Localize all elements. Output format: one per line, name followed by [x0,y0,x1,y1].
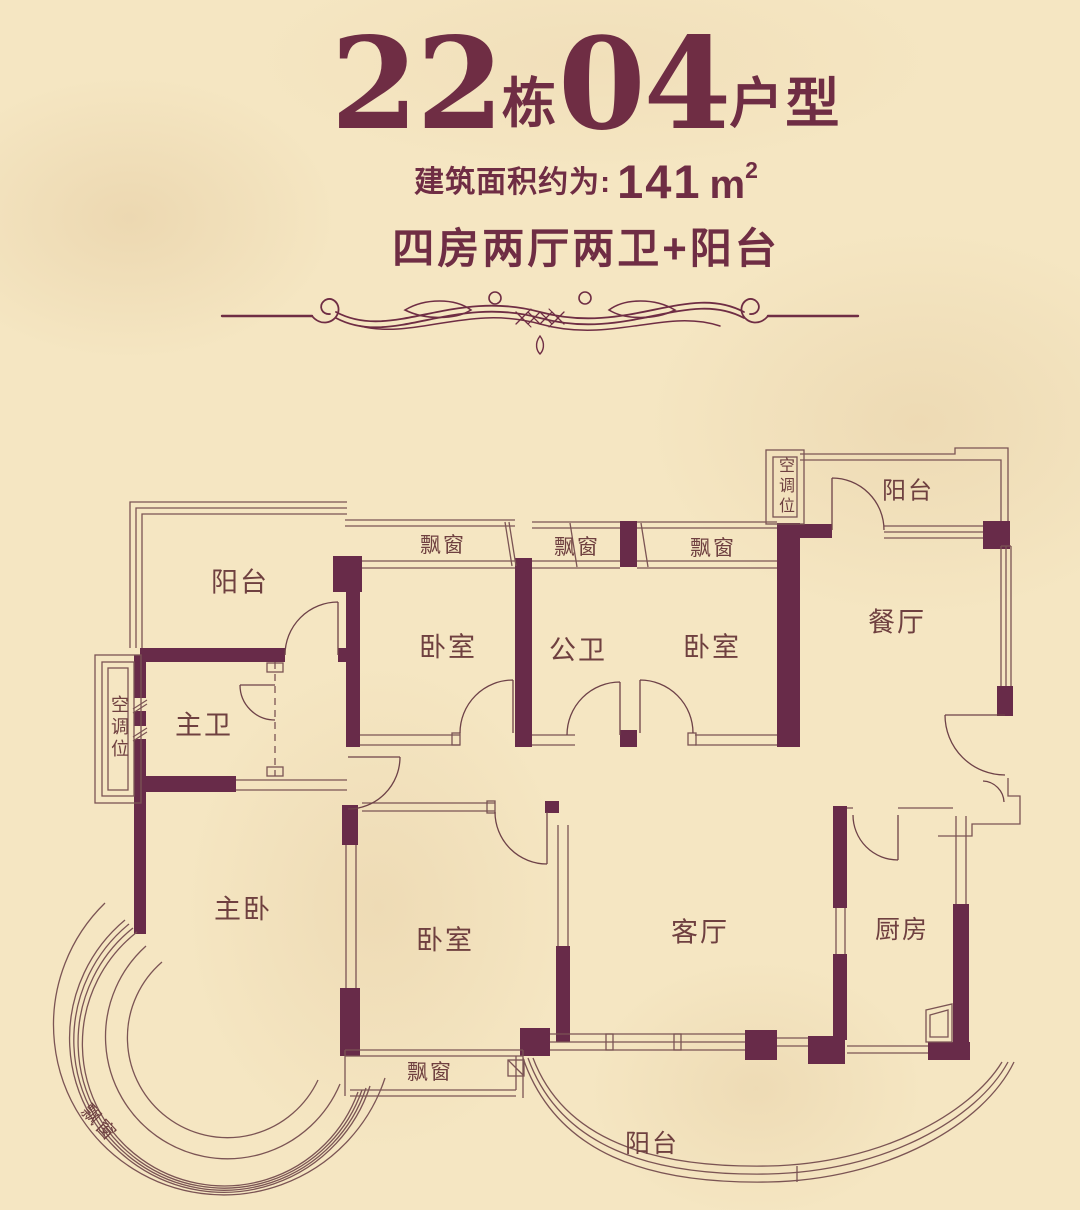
room-label-bedroom-3: 卧室 [416,919,474,958]
room-label-bay-window-bottom: 飘窗 [407,1056,453,1086]
room-label-balcony-top-right: 阳台 [882,471,934,506]
room-label-balcony-bottom: 阳台 [625,1124,679,1160]
room-label-living-room: 客厅 [671,911,729,950]
floor-plan-drawing [0,430,1080,1210]
floor-plan: 阳台 空调位 主卫 主卧 飘窗 卧室 飘窗 公卫 飘窗 卧室 空调位 阳台 餐厅… [0,430,1080,1210]
page-title: 22栋04户型 [92,18,1080,150]
layout-description: 四房两厅两卫+阳台 [92,215,1080,276]
room-label-master-bedroom: 主卧 [214,888,272,927]
room-label-bedroom-1: 卧室 [419,626,477,665]
room-label-ac-unit-left: 空调位 [105,695,131,761]
plan-header: 22栋04户型 建筑面积约为:141m2 四房两厅两卫+阳台 [0,18,1080,276]
unit-number: 04 [558,10,729,158]
room-label-bay-window-top-3: 飘窗 [690,532,736,562]
unit-label: 户型 [729,71,841,135]
room-label-bedroom-2: 卧室 [683,626,741,665]
area-prefix: 建筑面积约为: [414,166,611,199]
room-label-dining-room: 餐厅 [868,601,926,640]
room-label-bay-window-top-2: 飘窗 [554,531,600,561]
area-unit: m [710,163,746,207]
building-label: 栋 [502,71,558,135]
room-label-kitchen: 厨房 [875,910,929,946]
room-label-bay-window-top-1: 飘窗 [420,529,466,559]
room-label-ac-unit-top-right: 空调位 [773,457,797,517]
area-line: 建筑面积约为:141m2 [92,154,1080,209]
floor-plan-page: 22栋04户型 建筑面积约为:141m2 四房两厅两卫+阳台 [0,0,1080,1210]
room-label-public-bathroom: 公卫 [549,629,607,668]
divider-flourish-icon [200,286,880,356]
room-label-balcony-top-left: 阳台 [211,561,269,600]
area-superscript: 2 [745,157,758,183]
room-label-master-bathroom: 主卫 [175,704,233,743]
building-number: 22 [331,10,502,158]
walls-thin-and-windows [54,448,1020,1195]
area-number: 141 [617,155,701,208]
